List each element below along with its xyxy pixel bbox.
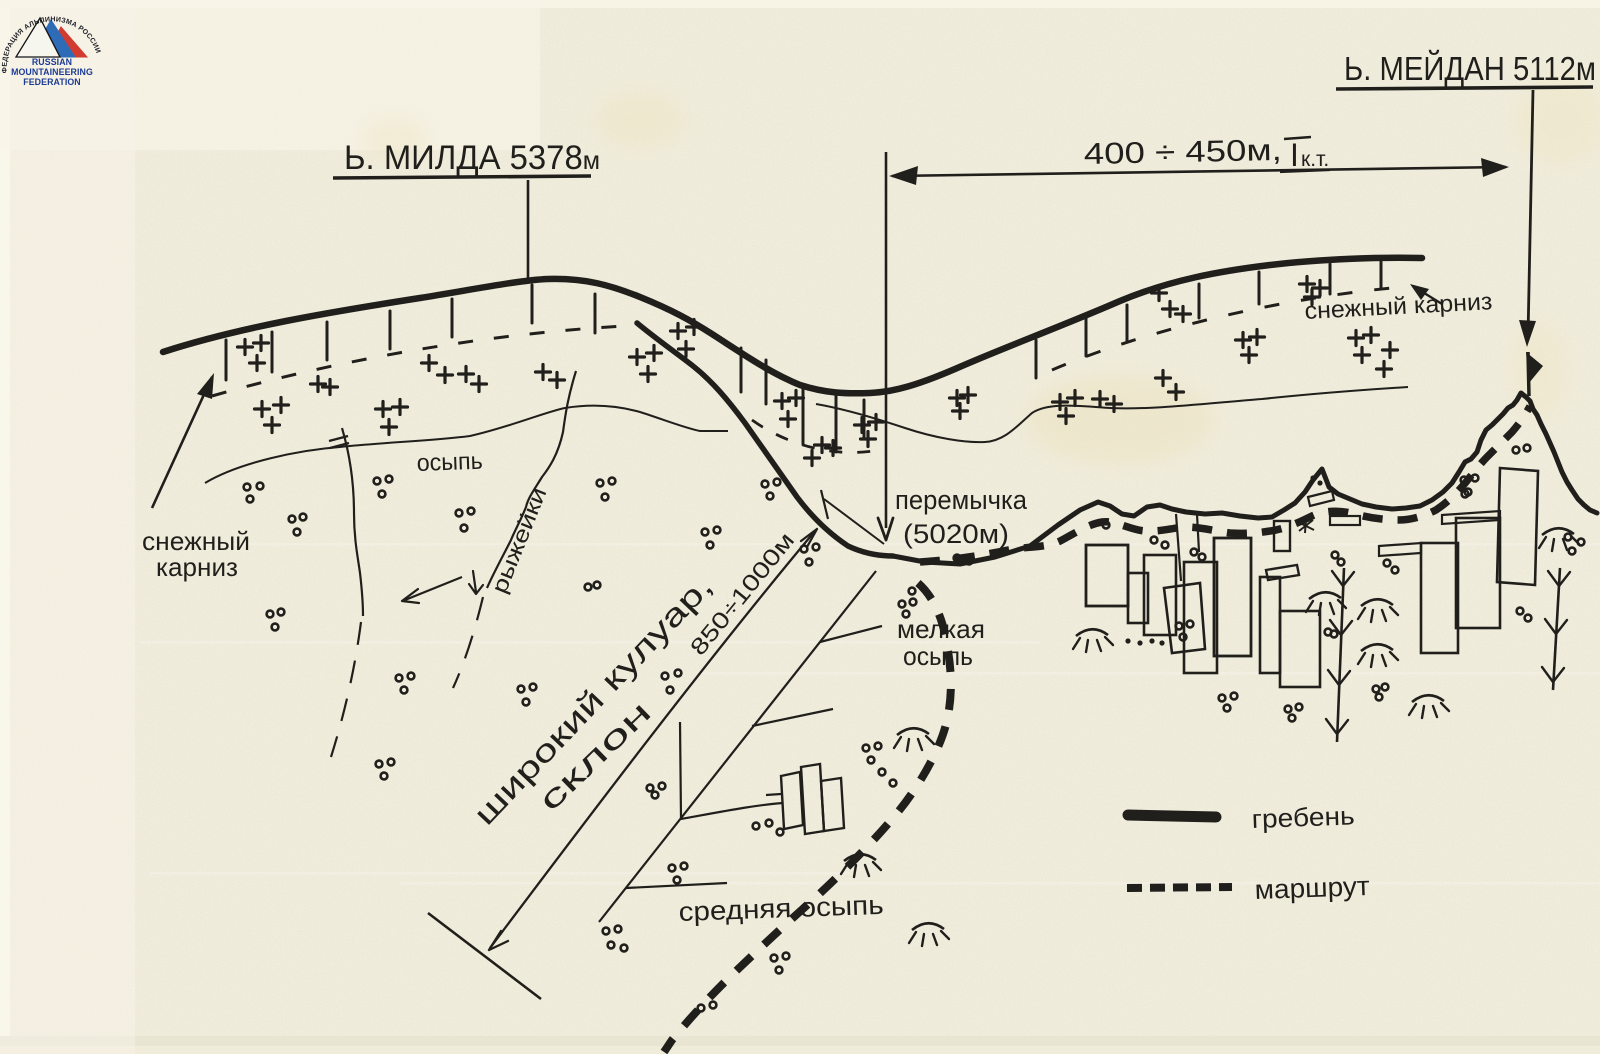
svg-text:гребень: гребень	[1251, 800, 1355, 834]
svg-text:Ь. МЕЙДАН 5112м: Ь. МЕЙДАН 5112м	[1344, 50, 1596, 87]
svg-text:мелкая: мелкая	[897, 614, 985, 644]
svg-text:MOUNTAINEERING: MOUNTAINEERING	[11, 67, 93, 77]
svg-text:к.т.: к.т.	[1301, 148, 1329, 171]
svg-text:Ь. МИЛДА 5378м: Ь. МИЛДА 5378м	[344, 139, 600, 177]
svg-text:осыпь: осыпь	[416, 448, 483, 477]
svg-text:перемычка: перемычка	[895, 485, 1028, 515]
svg-text:осыпь: осыпь	[903, 641, 973, 671]
svg-text:(5020м): (5020м)	[903, 519, 1009, 549]
svg-text:RUSSIAN: RUSSIAN	[32, 57, 72, 67]
svg-text:маршрут: маршрут	[1254, 871, 1370, 905]
svg-text:400 ÷ 450м,: 400 ÷ 450м,	[1083, 134, 1282, 171]
svg-text:FEDERATION: FEDERATION	[23, 77, 81, 87]
svg-text:карниз: карниз	[156, 552, 238, 582]
svg-text:I: I	[1290, 137, 1299, 173]
